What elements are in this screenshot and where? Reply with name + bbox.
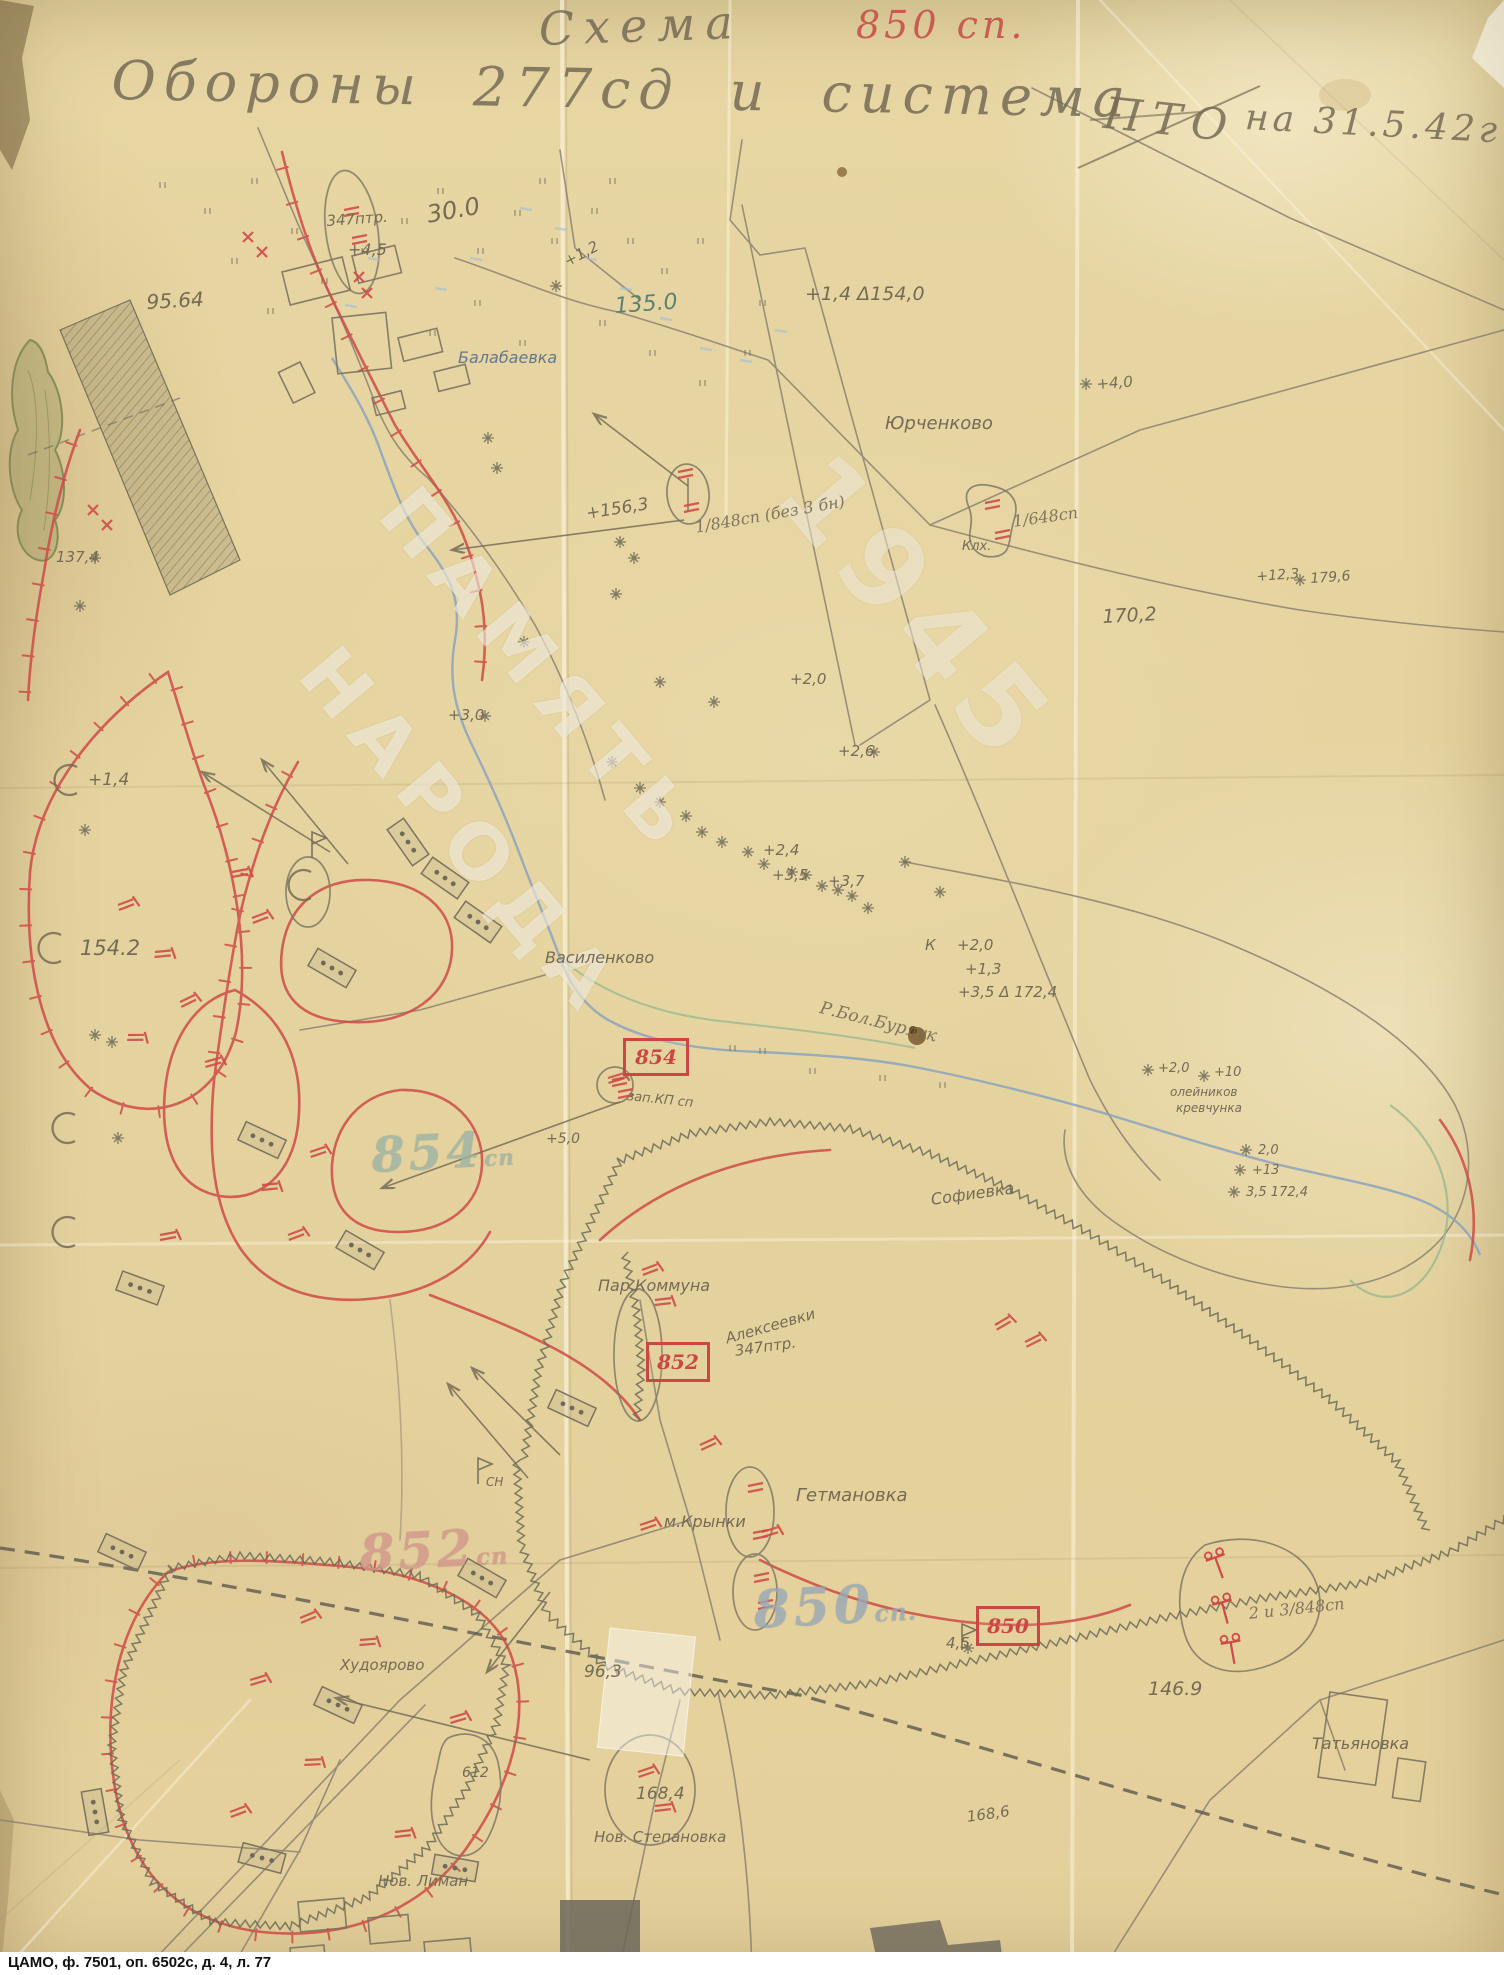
map-label: м.Крынки bbox=[664, 1514, 746, 1530]
red-cross-mark bbox=[88, 505, 98, 515]
machine-gun-glyph bbox=[1023, 1330, 1046, 1346]
machine-gun-symbol bbox=[655, 1294, 677, 1306]
machine-gun-glyph bbox=[637, 1763, 659, 1777]
torn-corner bbox=[0, 0, 34, 170]
grass-mark bbox=[232, 258, 237, 264]
machine-gun-glyph bbox=[655, 1294, 677, 1306]
paper-creases bbox=[0, 0, 1504, 1975]
map-label: +2,0 bbox=[790, 672, 826, 687]
crescent-position-symbol bbox=[289, 870, 311, 900]
machine-gun-symbol bbox=[699, 1434, 722, 1450]
grass-mark bbox=[810, 1068, 815, 1074]
antitank-gun-wheel bbox=[1223, 1593, 1231, 1601]
star-symbol bbox=[1080, 378, 1092, 390]
grass-mark bbox=[268, 308, 273, 314]
machine-gun-glyph bbox=[160, 1229, 181, 1240]
fire-direction-arrow bbox=[202, 772, 330, 852]
map-label: +1,3 bbox=[965, 962, 1001, 977]
star-symbol bbox=[1234, 1164, 1246, 1176]
machine-gun-symbol bbox=[287, 1225, 310, 1239]
star-symbol bbox=[846, 890, 858, 902]
map-label: кревчунка bbox=[1176, 1102, 1242, 1114]
defense-line-tick bbox=[475, 661, 486, 662]
defense-line-tick bbox=[238, 931, 249, 932]
map-label: +10 bbox=[1214, 1066, 1241, 1079]
red-cross-mark bbox=[102, 520, 112, 530]
machine-gun-symbol bbox=[299, 1608, 322, 1623]
map-label: 168,4 bbox=[636, 1786, 685, 1803]
artillery-position-symbol bbox=[421, 857, 469, 899]
red-bars-mark bbox=[684, 503, 699, 512]
fire-direction-arrow bbox=[594, 414, 688, 486]
marsh-mark bbox=[775, 330, 787, 332]
red-bars-mark bbox=[995, 530, 1010, 539]
machine-gun-symbol bbox=[229, 1802, 252, 1816]
star-symbol bbox=[482, 432, 494, 444]
red-cross-mark bbox=[354, 272, 364, 282]
machine-gun-symbol bbox=[637, 1763, 659, 1777]
grass-mark bbox=[698, 238, 703, 244]
machine-gun-symbol bbox=[993, 1312, 1016, 1330]
artillery-position-symbol bbox=[238, 1843, 286, 1874]
command-post-box: 852 bbox=[646, 1342, 710, 1382]
map-label: +2,4 bbox=[763, 843, 799, 858]
map-label: +4,5 bbox=[348, 242, 387, 258]
machine-gun-symbol bbox=[395, 1826, 417, 1838]
map-label: +3,7 bbox=[828, 874, 864, 889]
star-symbol bbox=[74, 600, 86, 612]
map-label: Балабаевка bbox=[458, 350, 557, 366]
map-label: +2,0 bbox=[957, 938, 993, 953]
grass-mark bbox=[520, 340, 525, 346]
antitank-gun-symbol bbox=[1219, 1633, 1244, 1665]
grass-mark bbox=[252, 178, 257, 184]
artillery-position-symbol bbox=[308, 948, 356, 987]
regiment-area-suffix: сп. bbox=[874, 1597, 918, 1627]
grass-mark bbox=[430, 330, 435, 336]
machine-gun-glyph bbox=[309, 1143, 331, 1157]
marsh-mark bbox=[660, 318, 672, 320]
star-symbol bbox=[742, 846, 754, 858]
machine-gun-symbol bbox=[178, 991, 201, 1007]
map-label: Пар.Коммуна bbox=[598, 1278, 710, 1294]
marsh-mark bbox=[740, 360, 752, 362]
map-label: Гетмановка bbox=[796, 1487, 908, 1505]
map-label: 95.64 bbox=[146, 289, 204, 312]
map-label: Татьяновка bbox=[1312, 1736, 1409, 1752]
star-symbol bbox=[1198, 1070, 1210, 1082]
regiment-area-suffix: сп bbox=[476, 1543, 509, 1571]
grass-mark bbox=[292, 228, 297, 234]
grass-mark bbox=[650, 350, 655, 356]
map-label: +3,0 bbox=[448, 708, 484, 723]
map-label: 179,6 bbox=[1310, 569, 1351, 586]
marsh-mark bbox=[555, 228, 567, 230]
map-label: 3,5 172,4 bbox=[1246, 1186, 1308, 1199]
map-label: 170,2 bbox=[1102, 605, 1157, 627]
map-label: Юрченково bbox=[885, 415, 993, 433]
machine-gun-glyph bbox=[251, 908, 274, 922]
star-symbol bbox=[708, 696, 720, 708]
grass-mark bbox=[402, 218, 407, 224]
star-symbol bbox=[696, 826, 708, 838]
marsh-mark bbox=[345, 305, 357, 307]
map-label: Худоярово bbox=[340, 1658, 424, 1673]
machine-gun-glyph bbox=[395, 1826, 417, 1838]
star-symbol bbox=[491, 462, 503, 474]
machine-gun-glyph bbox=[299, 1608, 322, 1623]
map-label: +1,4 Δ154,0 bbox=[805, 285, 925, 304]
machine-gun-glyph bbox=[155, 946, 177, 959]
red-bars-mark bbox=[678, 469, 693, 478]
red-bars-mark bbox=[985, 500, 1000, 509]
defense-line-tick bbox=[95, 723, 103, 731]
command-post-box: 850 bbox=[976, 1606, 1040, 1646]
regiment-area-number: 850 bbox=[752, 1574, 876, 1641]
map-label: Василенково bbox=[545, 950, 654, 966]
machine-gun-symbol bbox=[639, 1516, 661, 1530]
star-symbol bbox=[610, 588, 622, 600]
map-label: 612 bbox=[462, 1766, 489, 1780]
tape-repair bbox=[597, 1628, 695, 1756]
red-cross-mark bbox=[257, 247, 267, 257]
regiment-area-label: 852сп bbox=[358, 1516, 509, 1583]
star-symbol bbox=[862, 902, 874, 914]
map-label: 137,4 bbox=[56, 550, 99, 565]
grass-mark bbox=[478, 248, 483, 254]
machine-gun-glyph bbox=[117, 895, 140, 909]
machine-gun-symbol bbox=[117, 895, 140, 909]
grass-mark bbox=[438, 188, 443, 194]
map-label: Клх. bbox=[962, 540, 991, 553]
fire-direction-arrow bbox=[262, 760, 348, 864]
star-symbol bbox=[654, 796, 666, 808]
grass-mark bbox=[628, 238, 633, 244]
defense-line-tick bbox=[23, 655, 34, 656]
machine-gun-symbol bbox=[155, 946, 177, 959]
marsh-mark bbox=[620, 288, 632, 290]
machine-gun-glyph bbox=[449, 1710, 471, 1723]
grass-mark bbox=[540, 178, 545, 184]
regiment-area-suffix: сп bbox=[483, 1145, 515, 1172]
map-label: 4,5 bbox=[946, 1636, 970, 1651]
red-bars-mark bbox=[748, 1483, 763, 1492]
antitank-gun-wheel bbox=[1211, 1596, 1219, 1604]
map-label: +4,0 bbox=[1096, 374, 1133, 392]
map-label: +12,3 bbox=[1256, 567, 1300, 584]
star-symbol bbox=[934, 886, 946, 898]
star-symbol bbox=[606, 756, 618, 768]
map-label: 146.9 bbox=[1148, 1680, 1202, 1699]
machine-gun-glyph bbox=[229, 1802, 252, 1816]
machine-gun-symbol bbox=[251, 908, 274, 922]
grass-mark bbox=[610, 178, 615, 184]
map-label: +2,0 bbox=[1158, 1062, 1190, 1075]
grass-mark bbox=[940, 1082, 945, 1088]
star-symbol bbox=[89, 1029, 101, 1041]
map-label: 347птр. bbox=[326, 210, 388, 229]
machine-gun-symbol bbox=[249, 1672, 271, 1685]
fire-direction-arrow bbox=[487, 1592, 550, 1672]
map-label: 96,3 bbox=[584, 1664, 622, 1681]
defense-line-tick bbox=[20, 692, 31, 693]
machine-gun-glyph bbox=[304, 1754, 326, 1768]
machine-gun-glyph bbox=[993, 1312, 1016, 1330]
map-label: К bbox=[925, 938, 936, 953]
defense-line-tick bbox=[102, 1754, 113, 1755]
star-symbol bbox=[614, 536, 626, 548]
star-symbol bbox=[680, 810, 692, 822]
artillery-position-symbol bbox=[454, 901, 502, 943]
star-symbol bbox=[716, 836, 728, 848]
defense-line-tick bbox=[238, 1004, 249, 1005]
regiment-area-number: 854 bbox=[370, 1122, 485, 1184]
grass-mark bbox=[700, 380, 705, 386]
crescent-position-symbol bbox=[53, 1217, 75, 1247]
grass-mark bbox=[205, 208, 210, 214]
defense-line-tick bbox=[102, 1717, 113, 1718]
grass-mark bbox=[880, 1075, 885, 1081]
artillery-position-symbol bbox=[387, 818, 429, 866]
grass-mark bbox=[662, 268, 667, 274]
machine-gun-symbol bbox=[160, 1229, 181, 1240]
command-post-box: 854 bbox=[623, 1038, 689, 1076]
marsh-mark bbox=[520, 208, 532, 210]
grass-mark bbox=[600, 320, 605, 326]
river-channel-green bbox=[560, 958, 915, 1048]
artillery-position-symbol bbox=[314, 1687, 362, 1724]
machine-gun-symbol bbox=[359, 1634, 381, 1647]
fire-direction-arrow bbox=[472, 1368, 560, 1455]
fire-direction-arrow bbox=[448, 1384, 528, 1478]
artillery-position-symbol bbox=[336, 1230, 384, 1269]
star-symbol bbox=[654, 676, 666, 688]
star-symbol bbox=[550, 280, 562, 292]
machine-gun-glyph bbox=[359, 1634, 381, 1647]
antitank-gun-glyph bbox=[1221, 1640, 1245, 1665]
fire-direction-arrow bbox=[336, 1698, 590, 1760]
red-cross-mark bbox=[243, 232, 253, 242]
machine-gun-glyph bbox=[641, 1260, 664, 1274]
antitank-gun-wheel bbox=[1232, 1633, 1240, 1641]
artillery-position-symbol bbox=[116, 1271, 164, 1305]
defense-line-tick bbox=[338, 1557, 339, 1568]
machine-gun-glyph bbox=[249, 1672, 271, 1685]
antitank-gun-wheel bbox=[1220, 1635, 1228, 1643]
machine-gun-symbol bbox=[641, 1260, 664, 1274]
star-symbol bbox=[112, 1132, 124, 1144]
star-symbol bbox=[1228, 1186, 1240, 1198]
map-label: +13 bbox=[1252, 1164, 1279, 1177]
grass-mark bbox=[160, 182, 165, 188]
star-symbol bbox=[628, 552, 640, 564]
torn-corner bbox=[1472, 0, 1504, 88]
artillery-position-symbol bbox=[81, 1789, 108, 1836]
marsh-mark bbox=[435, 288, 447, 290]
map-label: +3,5 Δ 172,4 bbox=[958, 985, 1057, 1000]
machine-gun-glyph bbox=[127, 1029, 150, 1043]
river-meander bbox=[1350, 1105, 1448, 1297]
star-symbol bbox=[899, 856, 911, 868]
map-label: 2,0 bbox=[1258, 1144, 1279, 1157]
paper-stains bbox=[837, 79, 1371, 1045]
machine-gun-symbol bbox=[309, 1143, 331, 1157]
crescent-position-symbol bbox=[55, 765, 77, 795]
grass-mark bbox=[515, 210, 520, 216]
antitank-ditch-line bbox=[520, 1280, 565, 1460]
map-label: 154.2 bbox=[80, 938, 140, 959]
marsh-mark bbox=[700, 348, 712, 350]
star-symbol bbox=[79, 824, 91, 836]
roads bbox=[0, 88, 1504, 1975]
red-defense-lines bbox=[20, 152, 1474, 1943]
machine-gun-symbol bbox=[304, 1754, 326, 1768]
map-label: 135.0 bbox=[614, 292, 678, 318]
regiment-area-label: 850сп. bbox=[752, 1571, 918, 1640]
star-symbol bbox=[816, 880, 828, 892]
defense-line-tick bbox=[475, 626, 486, 627]
star-symbol bbox=[758, 858, 770, 870]
map-label: СН bbox=[486, 1476, 503, 1488]
map-label: олейников bbox=[1170, 1086, 1238, 1098]
machine-gun-symbol bbox=[127, 1029, 150, 1043]
grass-mark bbox=[475, 300, 480, 306]
red-bars-mark bbox=[753, 1530, 768, 1539]
map-label: Нов. Степановка bbox=[594, 1830, 726, 1845]
crescent-position-symbol bbox=[39, 933, 61, 963]
machine-gun-symbol bbox=[1023, 1330, 1046, 1346]
map-label: +1,4 bbox=[88, 772, 129, 789]
grass-mark bbox=[552, 238, 557, 244]
machine-gun-symbol bbox=[449, 1710, 471, 1723]
map-label: Нов. Лиман bbox=[378, 1874, 468, 1889]
machine-gun-glyph bbox=[639, 1516, 661, 1530]
crescent-position-symbol bbox=[53, 1113, 75, 1143]
regiment-area-label: 854сп bbox=[370, 1121, 516, 1184]
defense-line-tick bbox=[255, 1929, 256, 1940]
star-symbol bbox=[1142, 1064, 1154, 1076]
antitank-gun-symbol bbox=[1203, 1547, 1232, 1581]
map-label: +5,0 bbox=[546, 1132, 580, 1146]
map-label: +2,6 bbox=[838, 744, 874, 759]
machine-gun-glyph bbox=[287, 1225, 310, 1239]
star-symbol bbox=[634, 782, 646, 794]
scanned-map-document: ПАМЯТЬ НАРОДА 1945 Схема 850 сп. Обороны… bbox=[0, 0, 1504, 1975]
defense-line-tick bbox=[20, 925, 31, 926]
map-drawing bbox=[0, 0, 1504, 1975]
archive-caption-bar: ЦАМО, ф. 7501, оп. 6502с, д. 4, л. 77 bbox=[0, 1952, 1504, 1975]
star-symbol bbox=[106, 1036, 118, 1048]
regiment-area-number: 852 bbox=[358, 1518, 477, 1583]
star-symbol bbox=[518, 636, 530, 648]
marsh-mark bbox=[470, 258, 482, 260]
grass-mark bbox=[592, 208, 597, 214]
map-title-word: Схема bbox=[538, 0, 743, 52]
machine-gun-glyph bbox=[178, 991, 201, 1007]
forest-area bbox=[10, 340, 64, 561]
map-label: +3,5 bbox=[772, 868, 808, 883]
artillery-position-symbol bbox=[548, 1390, 596, 1427]
defense-line-tick bbox=[158, 1106, 159, 1117]
map-title-unit: 850 сп. bbox=[856, 6, 1026, 44]
machine-gun-glyph bbox=[699, 1434, 722, 1450]
torn-edge bbox=[0, 1790, 14, 1975]
archive-reference: ЦАМО, ф. 7501, оп. 6502с, д. 4, л. 77 bbox=[8, 1954, 271, 1971]
artillery-position-symbol bbox=[238, 1122, 286, 1159]
